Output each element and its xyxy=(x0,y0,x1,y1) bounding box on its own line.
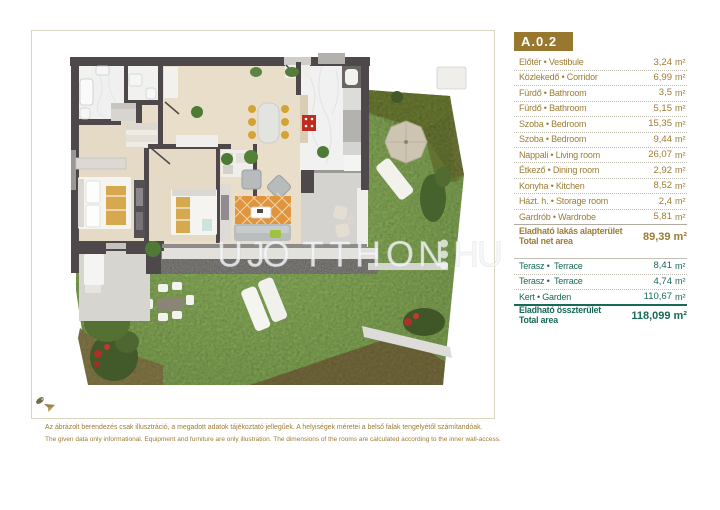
svg-text:UJOTTHONHU: UJOTTHONHU xyxy=(217,234,503,275)
